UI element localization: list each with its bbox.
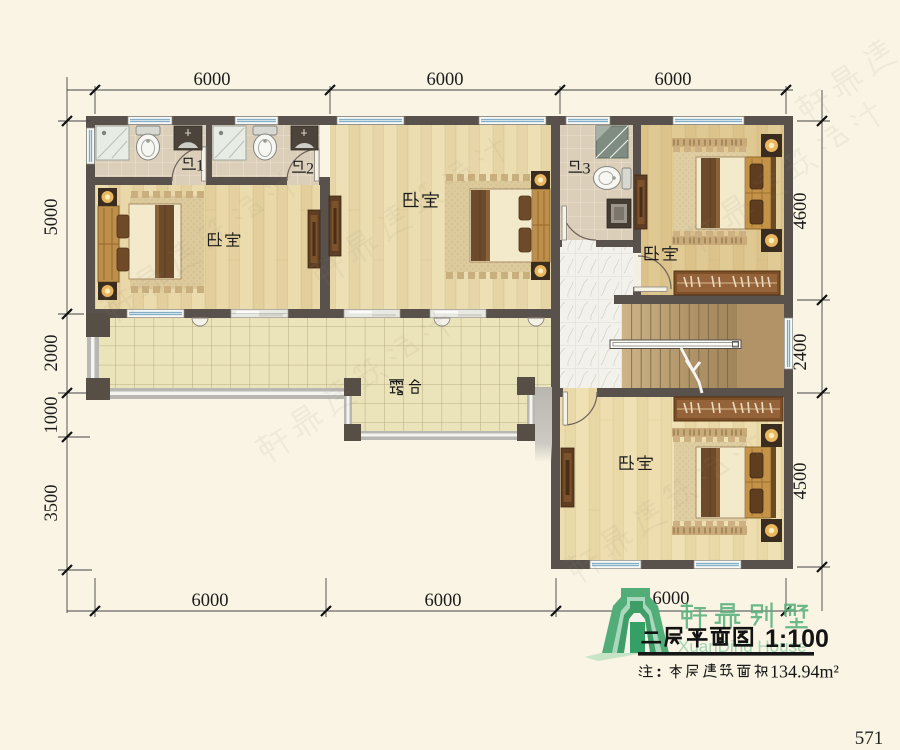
svg-text:4500: 4500 bbox=[791, 463, 811, 500]
svg-text:6000: 6000 bbox=[655, 70, 692, 90]
svg-text:1:100: 1:100 bbox=[765, 625, 829, 653]
svg-text:2: 2 bbox=[306, 161, 314, 178]
svg-text:2000: 2000 bbox=[42, 335, 62, 372]
svg-text:4600: 4600 bbox=[791, 193, 811, 230]
svg-text:6000: 6000 bbox=[194, 70, 231, 90]
svg-text:5000: 5000 bbox=[42, 199, 62, 236]
svg-text:2400: 2400 bbox=[791, 334, 811, 371]
svg-text:134.94m²: 134.94m² bbox=[770, 662, 839, 682]
svg-text:6000: 6000 bbox=[192, 591, 229, 611]
svg-text:3500: 3500 bbox=[42, 485, 62, 522]
svg-text:1: 1 bbox=[196, 158, 204, 175]
svg-text:3: 3 bbox=[583, 161, 591, 178]
svg-text:6000: 6000 bbox=[427, 70, 464, 90]
svg-text:571: 571 bbox=[855, 728, 884, 749]
svg-text:6000: 6000 bbox=[425, 591, 462, 611]
svg-text:1000: 1000 bbox=[42, 397, 62, 434]
